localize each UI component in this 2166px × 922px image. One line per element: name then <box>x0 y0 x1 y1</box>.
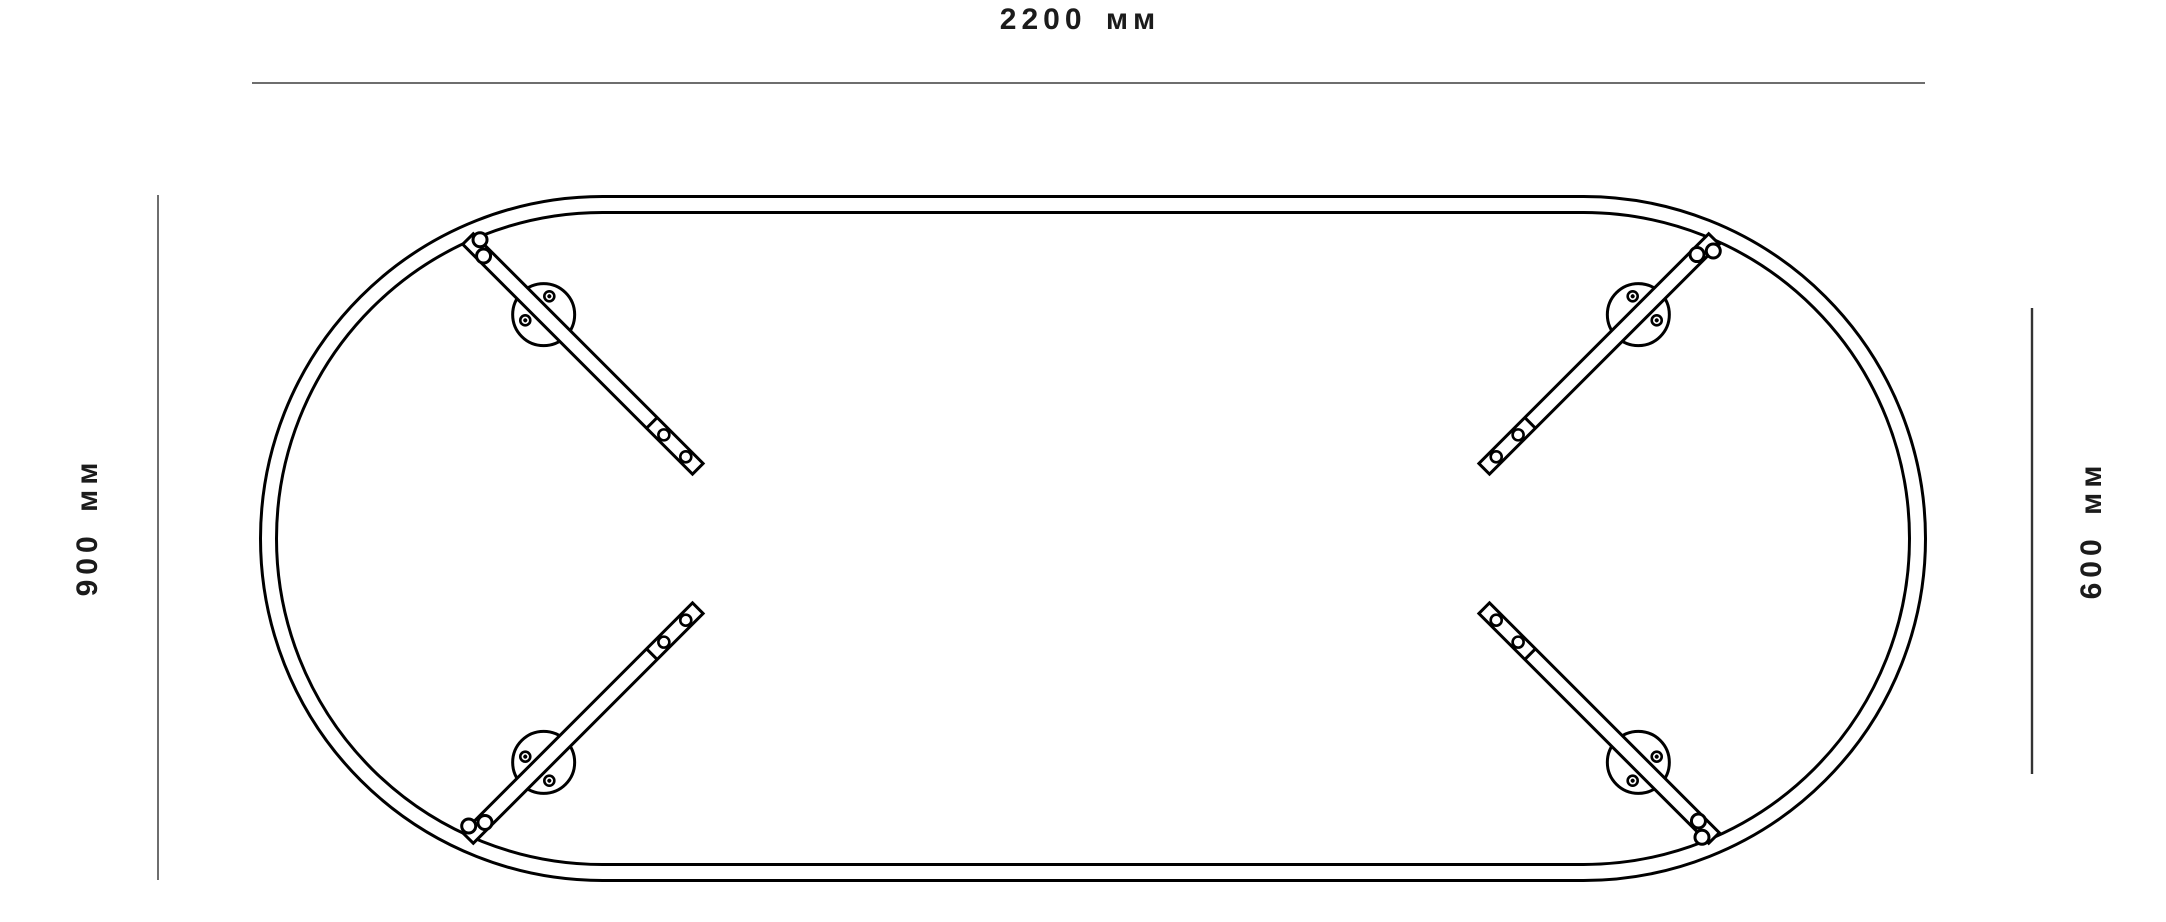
table-drawing-svg <box>0 0 2166 922</box>
dimension-label-right-depth: 600 мм <box>2075 461 2109 600</box>
technical-drawing-canvas: 2200 мм 900 мм 600 мм <box>0 0 2166 922</box>
leg-bracket-top-right <box>1462 217 1736 491</box>
leg-bracket-bottom-right <box>1462 586 1736 860</box>
leg-bracket-bottom-left <box>446 586 720 860</box>
tabletop-outer-outline <box>261 197 1926 881</box>
dimension-label-width: 2200 мм <box>1000 3 1160 37</box>
leg-bracket-top-left <box>446 217 720 491</box>
dimension-label-left-depth: 900 мм <box>71 458 105 597</box>
